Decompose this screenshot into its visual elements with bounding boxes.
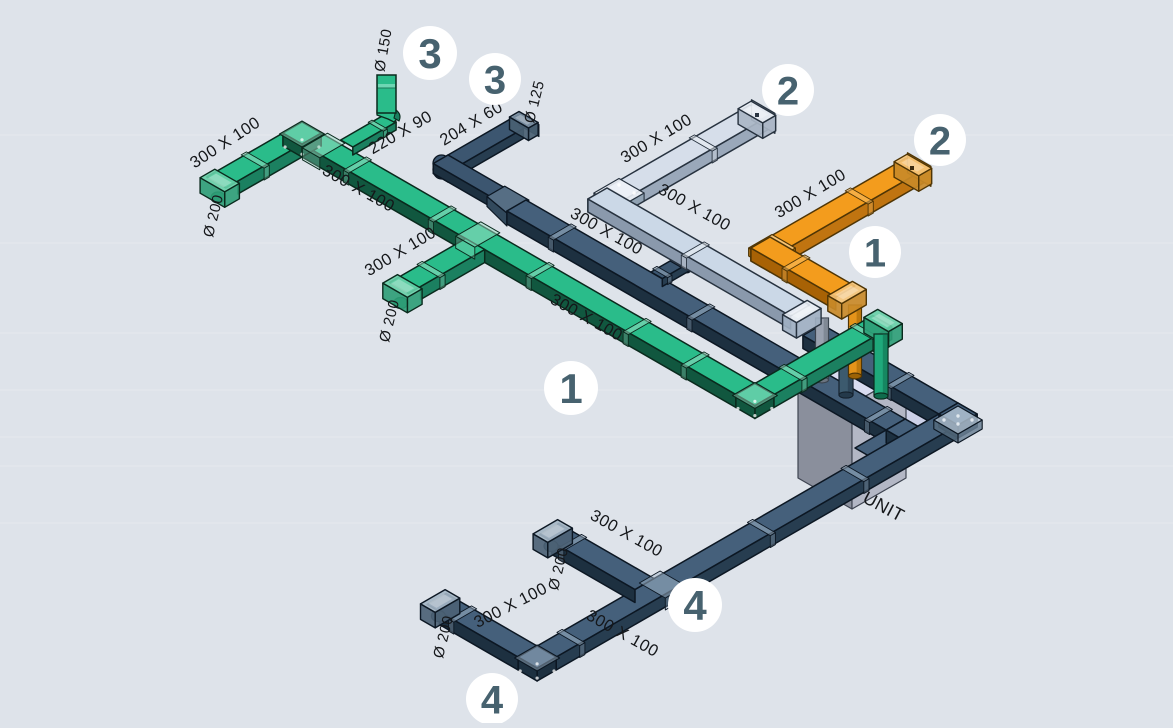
svg-text:1: 1 [559,365,582,412]
svg-text:4: 4 [683,582,707,629]
svg-text:4: 4 [481,678,504,722]
svg-text:2: 2 [929,119,951,163]
svg-text:3: 3 [484,58,506,102]
svg-text:3: 3 [418,30,441,77]
svg-text:2: 2 [777,69,799,113]
svg-text:1: 1 [864,231,886,275]
